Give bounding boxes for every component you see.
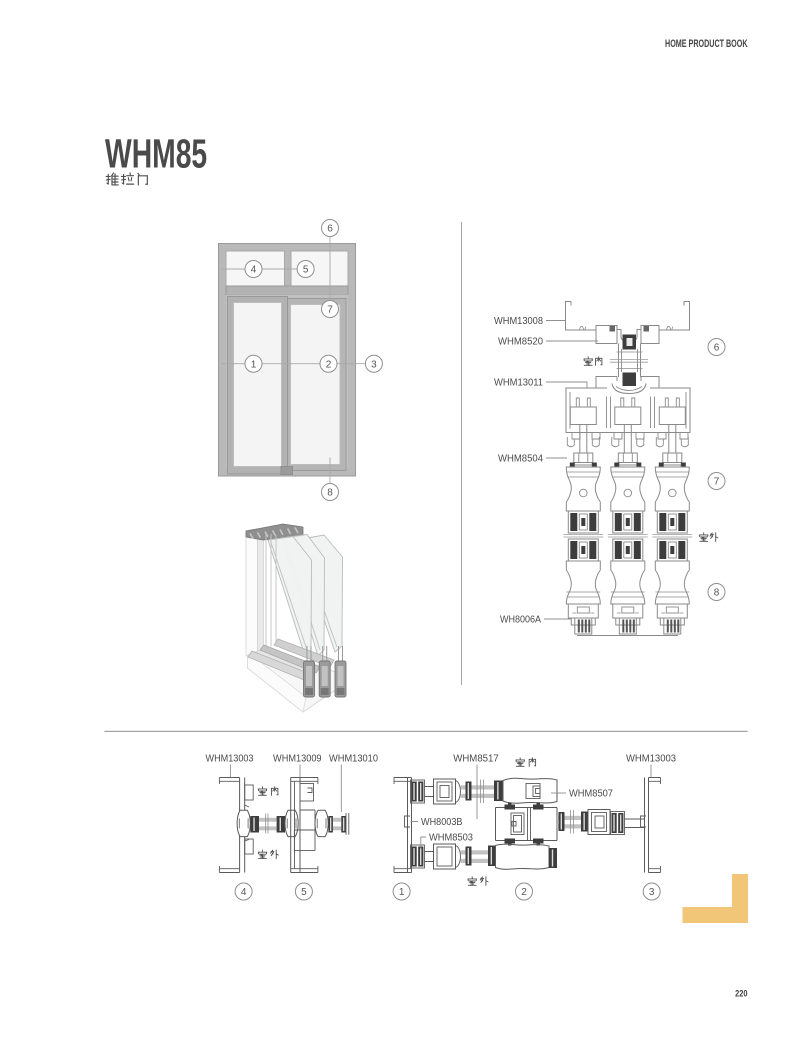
svg-text:3: 3 bbox=[649, 887, 655, 898]
svg-text:WHM8517: WHM8517 bbox=[453, 754, 499, 765]
svg-text:4: 4 bbox=[241, 887, 247, 898]
svg-text:WHM8520: WHM8520 bbox=[498, 337, 543, 348]
svg-text:WHM13009: WHM13009 bbox=[273, 754, 322, 765]
svg-text:2: 2 bbox=[326, 359, 332, 370]
svg-text:8: 8 bbox=[327, 488, 333, 499]
svg-text:5: 5 bbox=[303, 265, 309, 276]
svg-text:WH8003B: WH8003B bbox=[421, 817, 463, 828]
svg-text:WHM13008: WHM13008 bbox=[494, 316, 543, 327]
svg-text:6: 6 bbox=[714, 343, 720, 354]
svg-text:WHM8507: WHM8507 bbox=[569, 789, 613, 800]
svg-text:WHM85: WHM85 bbox=[105, 131, 207, 176]
svg-text:WHM13011: WHM13011 bbox=[494, 378, 543, 389]
svg-text:6: 6 bbox=[327, 224, 333, 235]
svg-text:8: 8 bbox=[714, 588, 720, 599]
svg-text:WHM8503: WHM8503 bbox=[429, 833, 473, 844]
svg-text:7: 7 bbox=[714, 477, 720, 488]
svg-text:4: 4 bbox=[251, 265, 257, 276]
svg-text:3: 3 bbox=[371, 359, 377, 370]
svg-text:HOME PRODUCT BOOK: HOME PRODUCT BOOK bbox=[665, 38, 748, 50]
svg-text:7: 7 bbox=[327, 305, 333, 316]
svg-text:1: 1 bbox=[399, 887, 405, 898]
svg-text:WHM8504: WHM8504 bbox=[498, 454, 543, 465]
svg-text:WHM13010: WHM13010 bbox=[329, 754, 378, 765]
svg-text:WHM13003: WHM13003 bbox=[206, 754, 254, 765]
svg-text:2: 2 bbox=[521, 887, 527, 898]
svg-text:5: 5 bbox=[301, 887, 307, 898]
svg-text:WH8006A: WH8006A bbox=[500, 615, 541, 626]
svg-text:WHM13003: WHM13003 bbox=[626, 754, 676, 765]
svg-text:1: 1 bbox=[251, 359, 257, 370]
svg-text:220: 220 bbox=[735, 988, 748, 999]
